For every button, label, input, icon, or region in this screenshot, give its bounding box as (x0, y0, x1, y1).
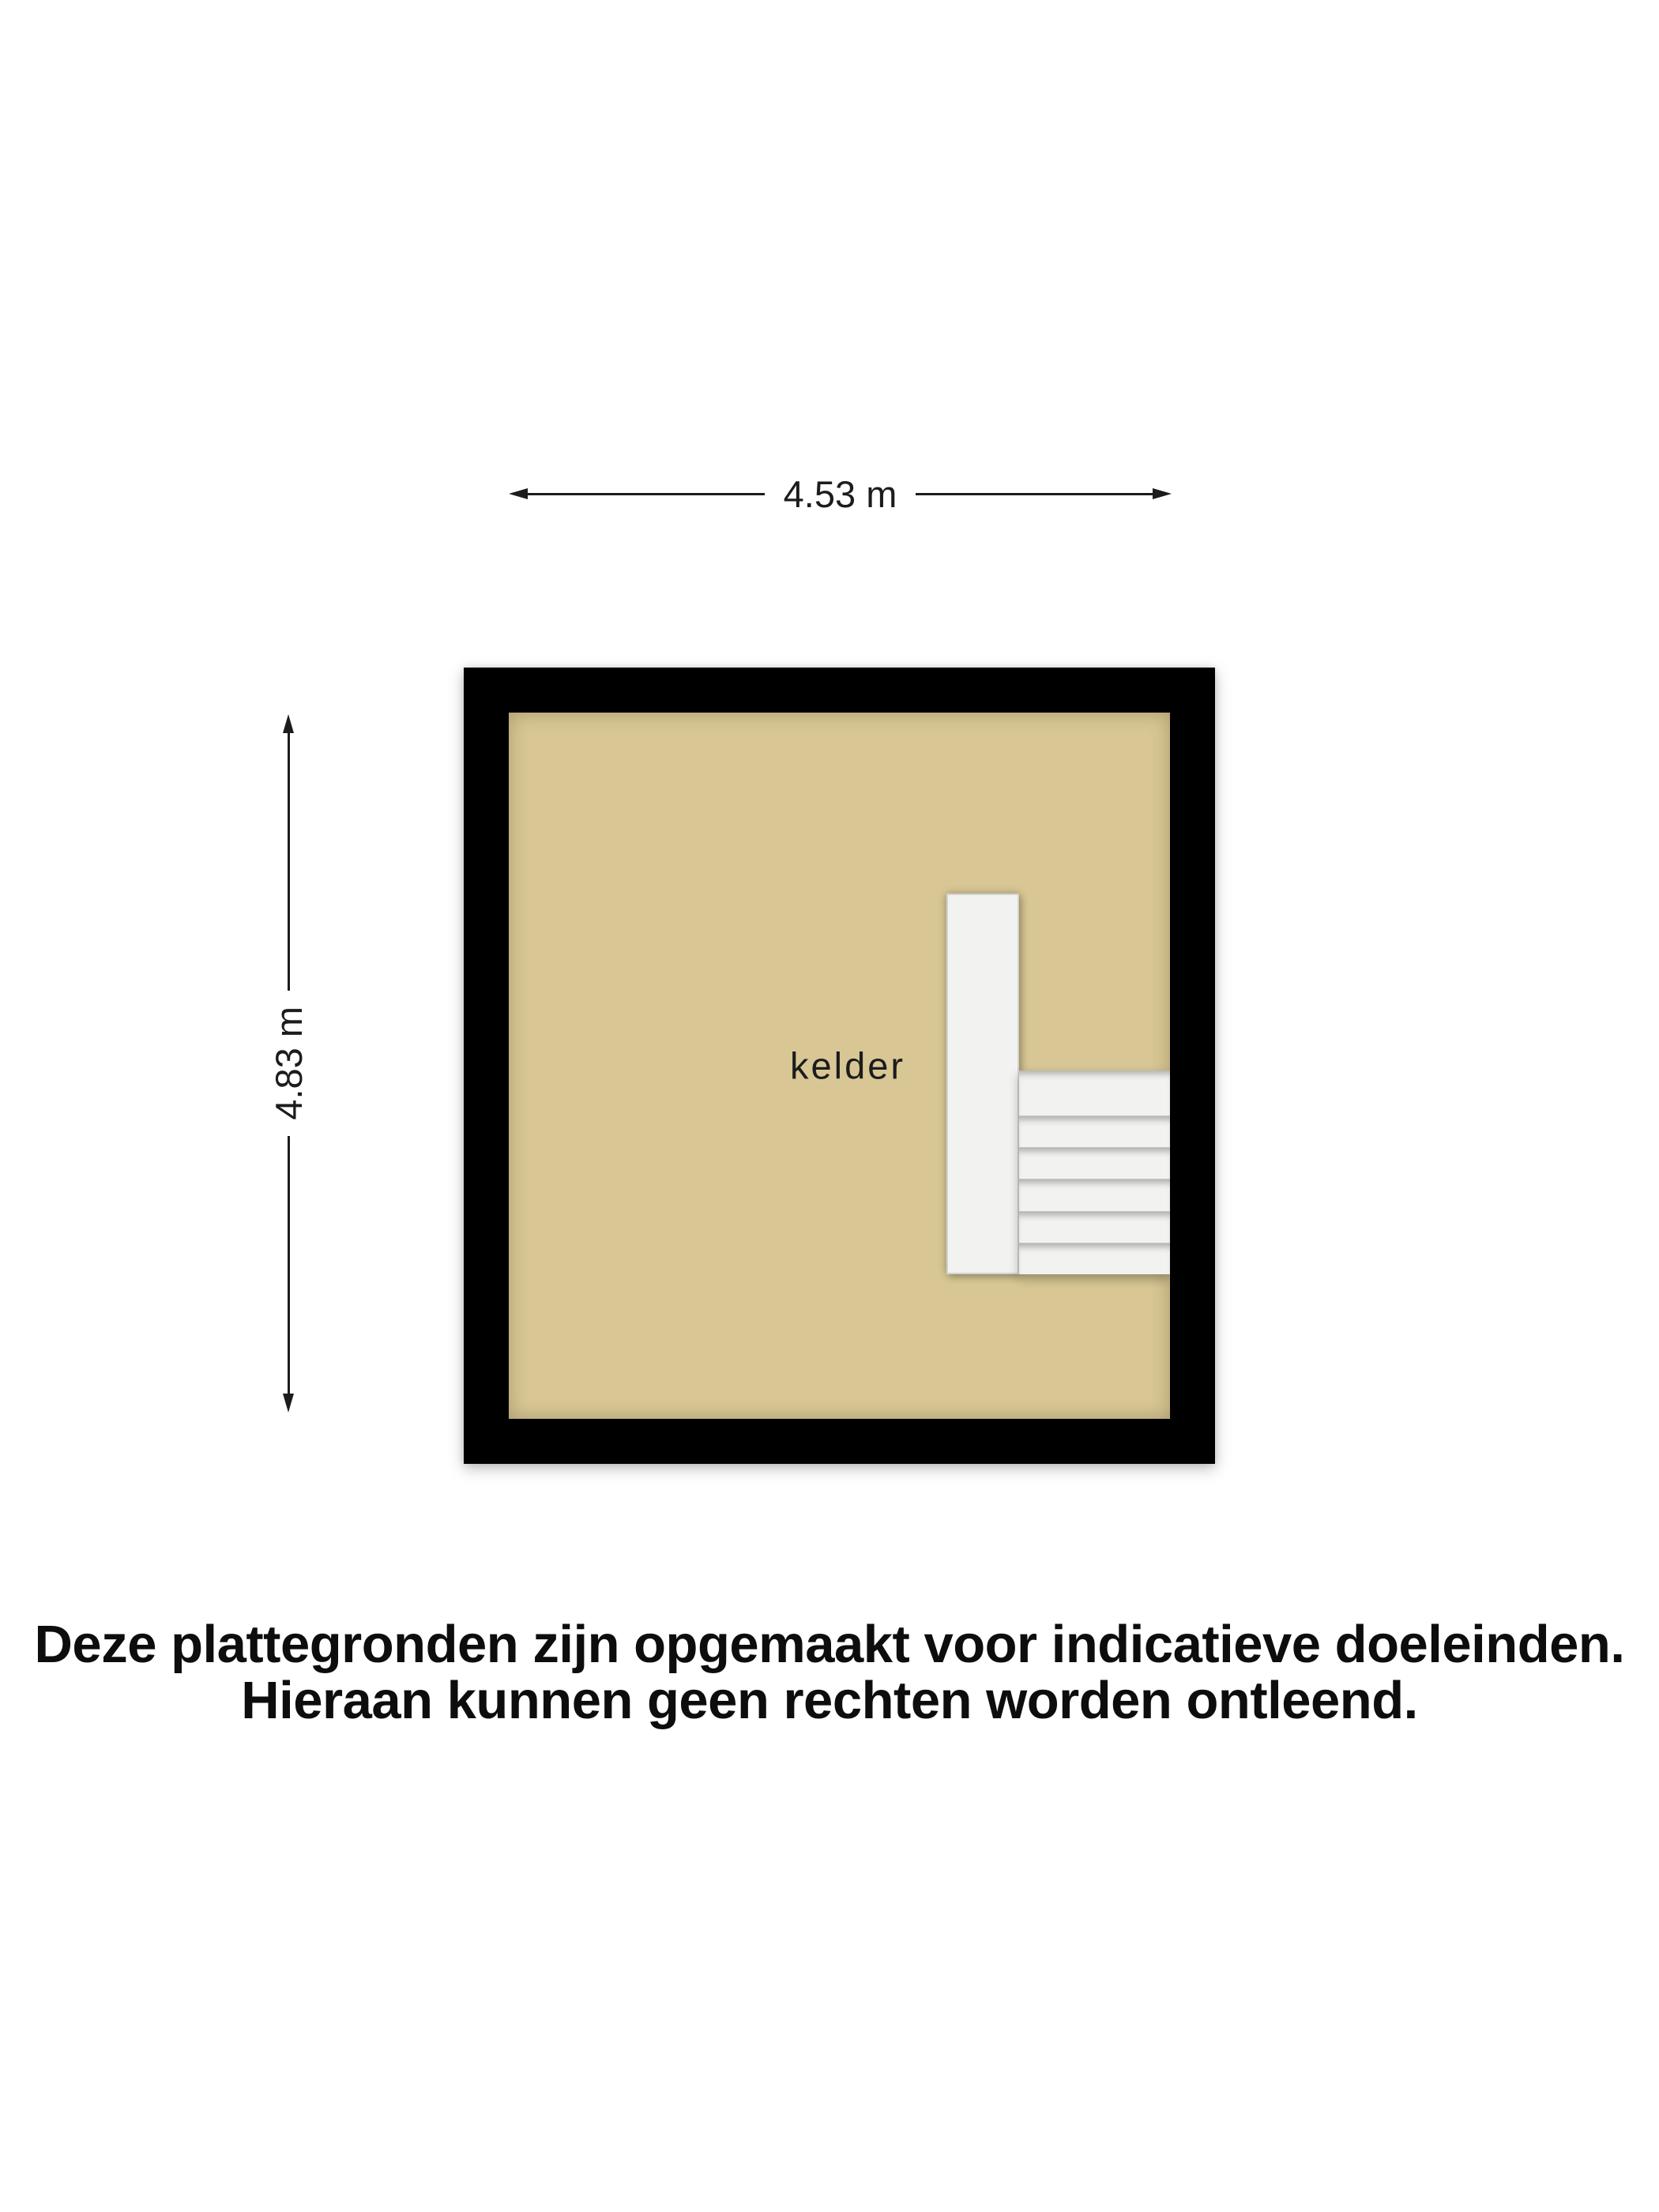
stair-tread (1019, 1243, 1170, 1274)
dimension-line-bottom (288, 1136, 290, 1394)
dimension-arrow-up-icon (283, 714, 294, 733)
dimension-arrow-left-icon (509, 488, 528, 499)
dimension-arrow-right-icon (1153, 488, 1172, 499)
dimension-line-left (528, 493, 765, 495)
stair-tread (1019, 1147, 1170, 1179)
stair-tread (1019, 1179, 1170, 1210)
disclaimer-text: Deze plattegronden zijn opgemaakt voor i… (0, 1616, 1659, 1729)
dimension-width: 4.53 m (509, 483, 1172, 505)
stair-tread (1019, 1115, 1170, 1147)
floorplan-page: 4.53 m 4.83 m kelder Deze plattegronden … (0, 0, 1659, 2212)
floorplan-outer-wall: kelder (464, 668, 1215, 1464)
dimension-width-label: 4.53 m (765, 476, 916, 513)
disclaimer-line-2: Hieraan kunnen geen rechten worden ontle… (0, 1672, 1659, 1729)
dimension-arrow-down-icon (283, 1394, 294, 1413)
staircase-steps (1019, 1070, 1170, 1274)
disclaimer-line-1: Deze plattegronden zijn opgemaakt voor i… (0, 1616, 1659, 1672)
stair-tread (1019, 1070, 1170, 1115)
dimension-height-label: 4.83 m (270, 991, 307, 1136)
stair-tread (1019, 1211, 1170, 1243)
dimension-line-top (288, 733, 290, 991)
staircase-wall (946, 893, 1019, 1274)
dimension-line-right (916, 493, 1153, 495)
dimension-height: 4.83 m (277, 714, 299, 1413)
room-kelder-floor: kelder (509, 713, 1170, 1419)
room-label: kelder (790, 1048, 905, 1085)
